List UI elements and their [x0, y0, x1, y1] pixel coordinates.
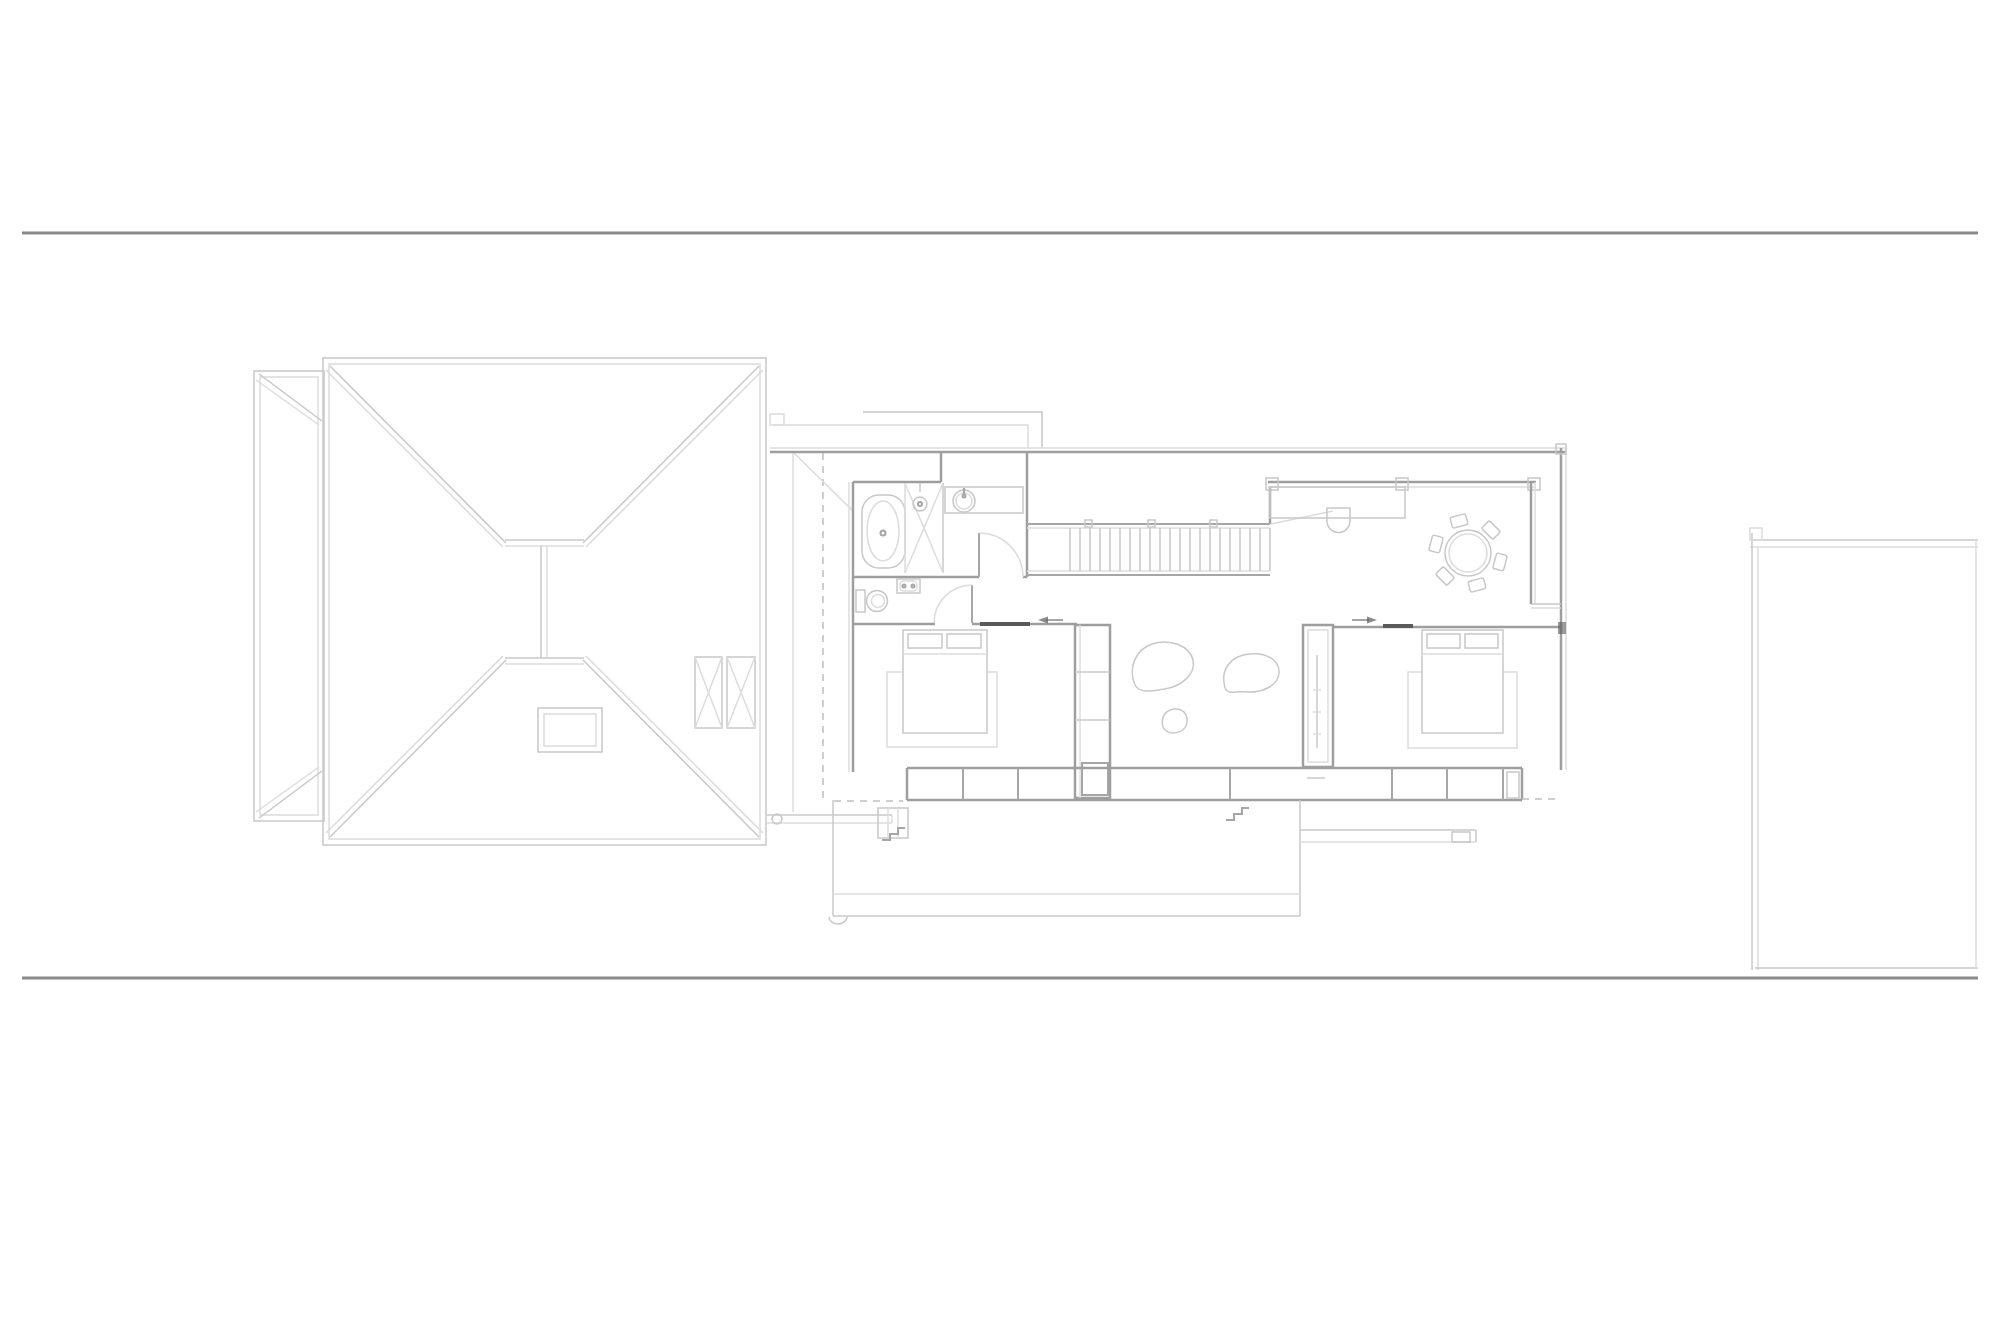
wall-break-mark — [1558, 622, 1566, 634]
site-boundary-lines — [22, 233, 1978, 978]
shower — [905, 483, 943, 573]
dining-chair — [1468, 578, 1486, 593]
dining-chair — [1429, 535, 1444, 553]
toilet — [856, 590, 888, 612]
wardrobe-2 — [1303, 625, 1333, 778]
loft-furniture — [1270, 487, 1507, 592]
ridge-lines — [505, 540, 584, 664]
roof-plan — [254, 358, 766, 845]
wc-door — [934, 585, 972, 623]
bedroom-2 — [1303, 617, 1517, 779]
lower-terrace — [1300, 830, 1476, 842]
wash-basin — [897, 579, 920, 593]
bedroom-1-bed — [903, 630, 987, 733]
floor-plan-drawing — [0, 0, 2000, 1333]
window-seat-band — [907, 768, 1522, 800]
skylight-hatches — [695, 657, 755, 728]
bedroom-2-bed — [1422, 630, 1503, 733]
neighbour-building-outline — [1750, 528, 1978, 970]
wardrobe-1 — [1075, 625, 1110, 798]
dining-chair — [1450, 514, 1468, 529]
door-threshold — [980, 622, 1030, 626]
chimney — [538, 708, 602, 752]
bathroom-door — [979, 533, 1023, 577]
stone-ottoman — [1224, 654, 1279, 693]
left-wing-roof — [254, 371, 324, 821]
door-threshold — [1383, 624, 1413, 628]
dining-chair — [1493, 553, 1508, 571]
entry-arrow-left — [1038, 617, 1063, 624]
dining-set — [1429, 514, 1508, 593]
bathtub — [862, 495, 905, 568]
shower-drain — [913, 497, 927, 511]
deck-corner-detail — [829, 917, 847, 924]
entry-arrow-right — [1352, 617, 1377, 624]
stone-ottoman — [1132, 642, 1193, 691]
step-symbol — [1226, 808, 1249, 820]
deck — [829, 799, 1561, 924]
stone-ottoman — [1162, 709, 1187, 733]
bedroom-1 — [887, 617, 1110, 799]
entry-canopy-outline — [863, 412, 1042, 448]
main-hip-roof — [323, 358, 766, 845]
staircase — [1027, 511, 1333, 575]
landing-hall — [1132, 642, 1279, 733]
desk — [1270, 487, 1405, 518]
drawing-sheet — [0, 0, 2000, 1333]
dining-table — [1445, 530, 1491, 576]
vanity-sink — [945, 487, 1023, 513]
stair-treads — [1070, 528, 1270, 571]
bathroom — [856, 483, 1023, 623]
